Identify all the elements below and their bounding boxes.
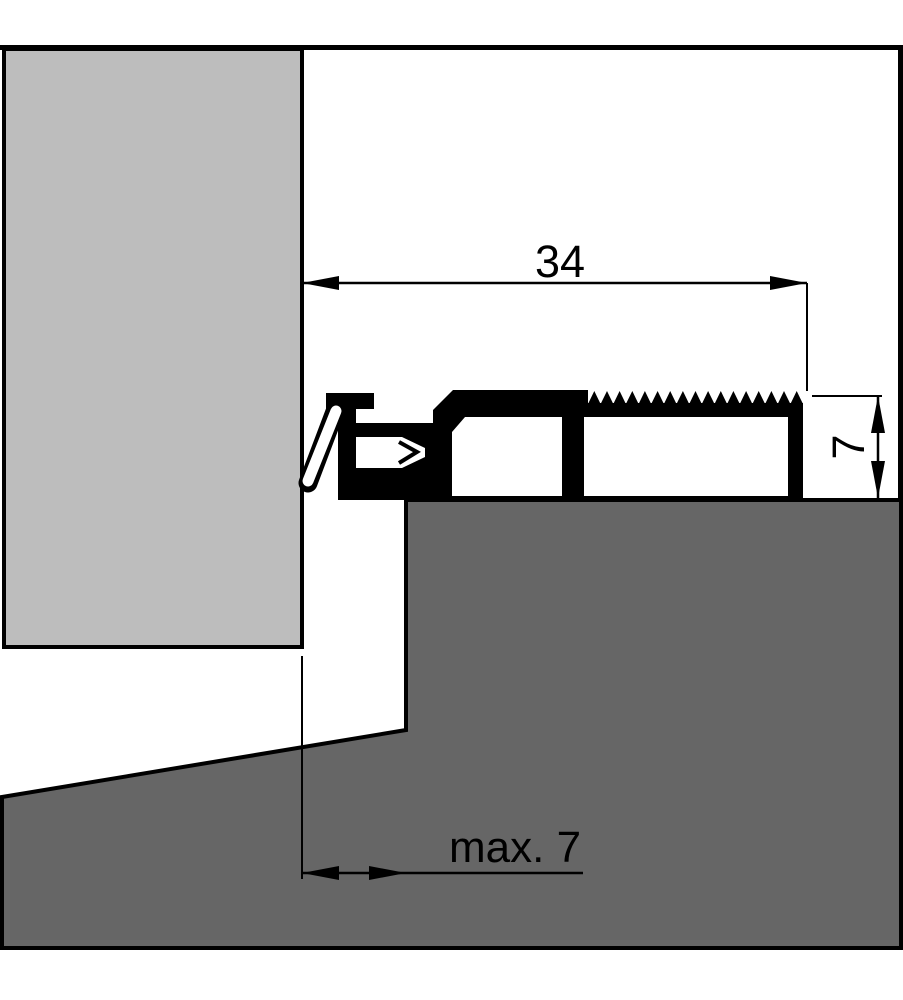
anti-slip-serrations-icon [588,391,803,404]
right-frame-line [898,45,903,502]
dim-width-label: 34 [535,236,585,287]
door-panel [4,49,302,647]
threshold-cross-section-drawing: 34 7 max. 7 [0,0,903,1000]
technical-drawing-page: 34 7 max. 7 [0,0,903,1000]
dim-clearance-label: max. 7 [449,823,581,872]
dim-height-label: 7 [823,434,874,459]
